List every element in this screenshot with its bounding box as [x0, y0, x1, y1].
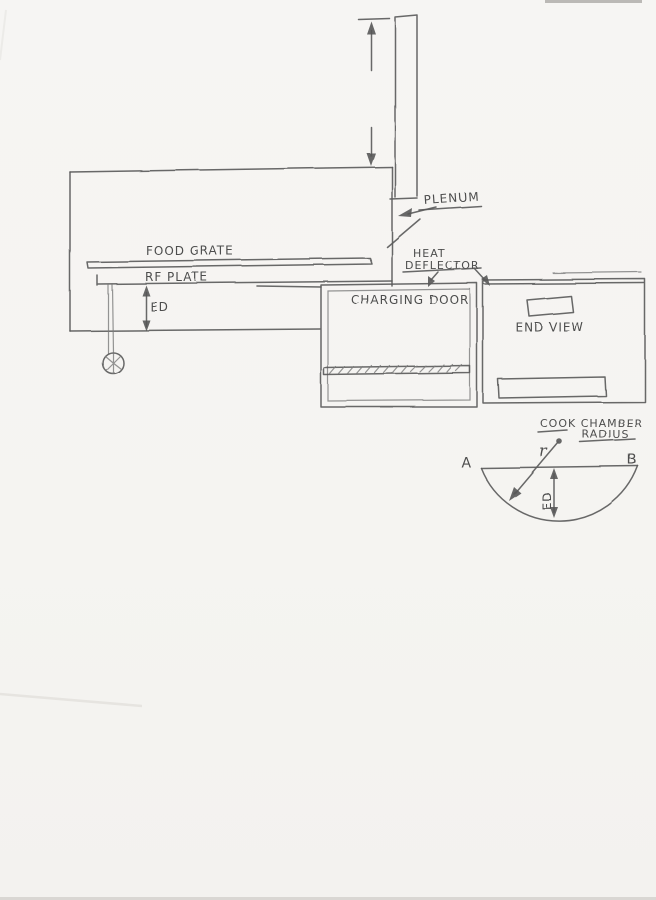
end-view-box [483, 279, 645, 403]
rf-plate-extension-line [257, 286, 321, 287]
ed-label-section: ED [540, 491, 554, 510]
plenum-leader-line [408, 207, 436, 214]
smoke-stack-outline [395, 15, 417, 197]
plenum-callout: PLENUM [398, 189, 481, 217]
plenum-arrowhead [398, 208, 412, 217]
ed-section-arrowhead-up [550, 468, 558, 479]
front-leg [103, 285, 124, 374]
smoke-stack [390, 15, 417, 199]
stack-vent-opening [527, 296, 573, 316]
arrowhead-up [367, 21, 376, 34]
plenum-label: PLENUM [423, 189, 479, 207]
food-grate-bar [87, 258, 372, 268]
cook-chamber-section-view: COOK CHAMBER RADIUS A B r ED [461, 417, 643, 521]
end-view: END VIEW [483, 272, 645, 403]
ed-dimension-side: ED [142, 285, 169, 331]
chamber-top-edge [70, 167, 392, 172]
end-view-label: END VIEW [515, 320, 584, 334]
paper-crease-line [0, 694, 142, 706]
deflector-leader-left [431, 272, 438, 280]
ed-arrowhead-down [142, 320, 150, 331]
heat-deflector-callout: HEAT DEFLECTOR [403, 247, 490, 287]
scanned-sketch-page: PLENUM HEAT DEFLECTOR FOOD GRATE RF PLAT… [0, 0, 656, 900]
stack-height-dimension [358, 18, 389, 166]
radius-r-label: r [539, 441, 548, 460]
dimension-tick-line [358, 18, 389, 19]
charging-door-label: CHARGING DOOR [351, 293, 469, 307]
firebox-door-opening [498, 377, 606, 398]
end-view-top-double-line [484, 283, 644, 284]
end-view-top-stray-stroke [553, 272, 641, 273]
chord-line-ab [481, 466, 638, 468]
chamber-arc [481, 466, 638, 521]
smoker-side-view: PLENUM HEAT DEFLECTOR FOOD GRATE RF PLAT… [70, 15, 490, 374]
paper-corner-crease [0, 10, 6, 60]
rf-plate-label: RF PLATE [145, 270, 208, 284]
ed-label-side: ED [150, 300, 169, 314]
charging-door-view: CHARGING DOOR [321, 283, 477, 407]
coal-grate-bar [324, 365, 470, 375]
cook-underline [538, 430, 567, 432]
ed-arrowhead-up [142, 285, 150, 296]
leg-line-right [112, 285, 113, 353]
point-a-label: A [461, 455, 472, 471]
caster-wheel-spokes [105, 353, 121, 374]
stack-base-line [390, 198, 417, 199]
scan-artifacts [0, 2, 656, 900]
food-grate-label: FOOD GRATE [146, 244, 234, 258]
rf-plate-line [98, 281, 392, 284]
ed-dimension-section: ED [540, 468, 558, 518]
arrowhead-down [367, 153, 376, 166]
radius-arrowhead [509, 487, 521, 501]
smoker-plan-drawing: PLENUM HEAT DEFLECTOR FOOD GRATE RF PLAT… [0, 0, 656, 900]
